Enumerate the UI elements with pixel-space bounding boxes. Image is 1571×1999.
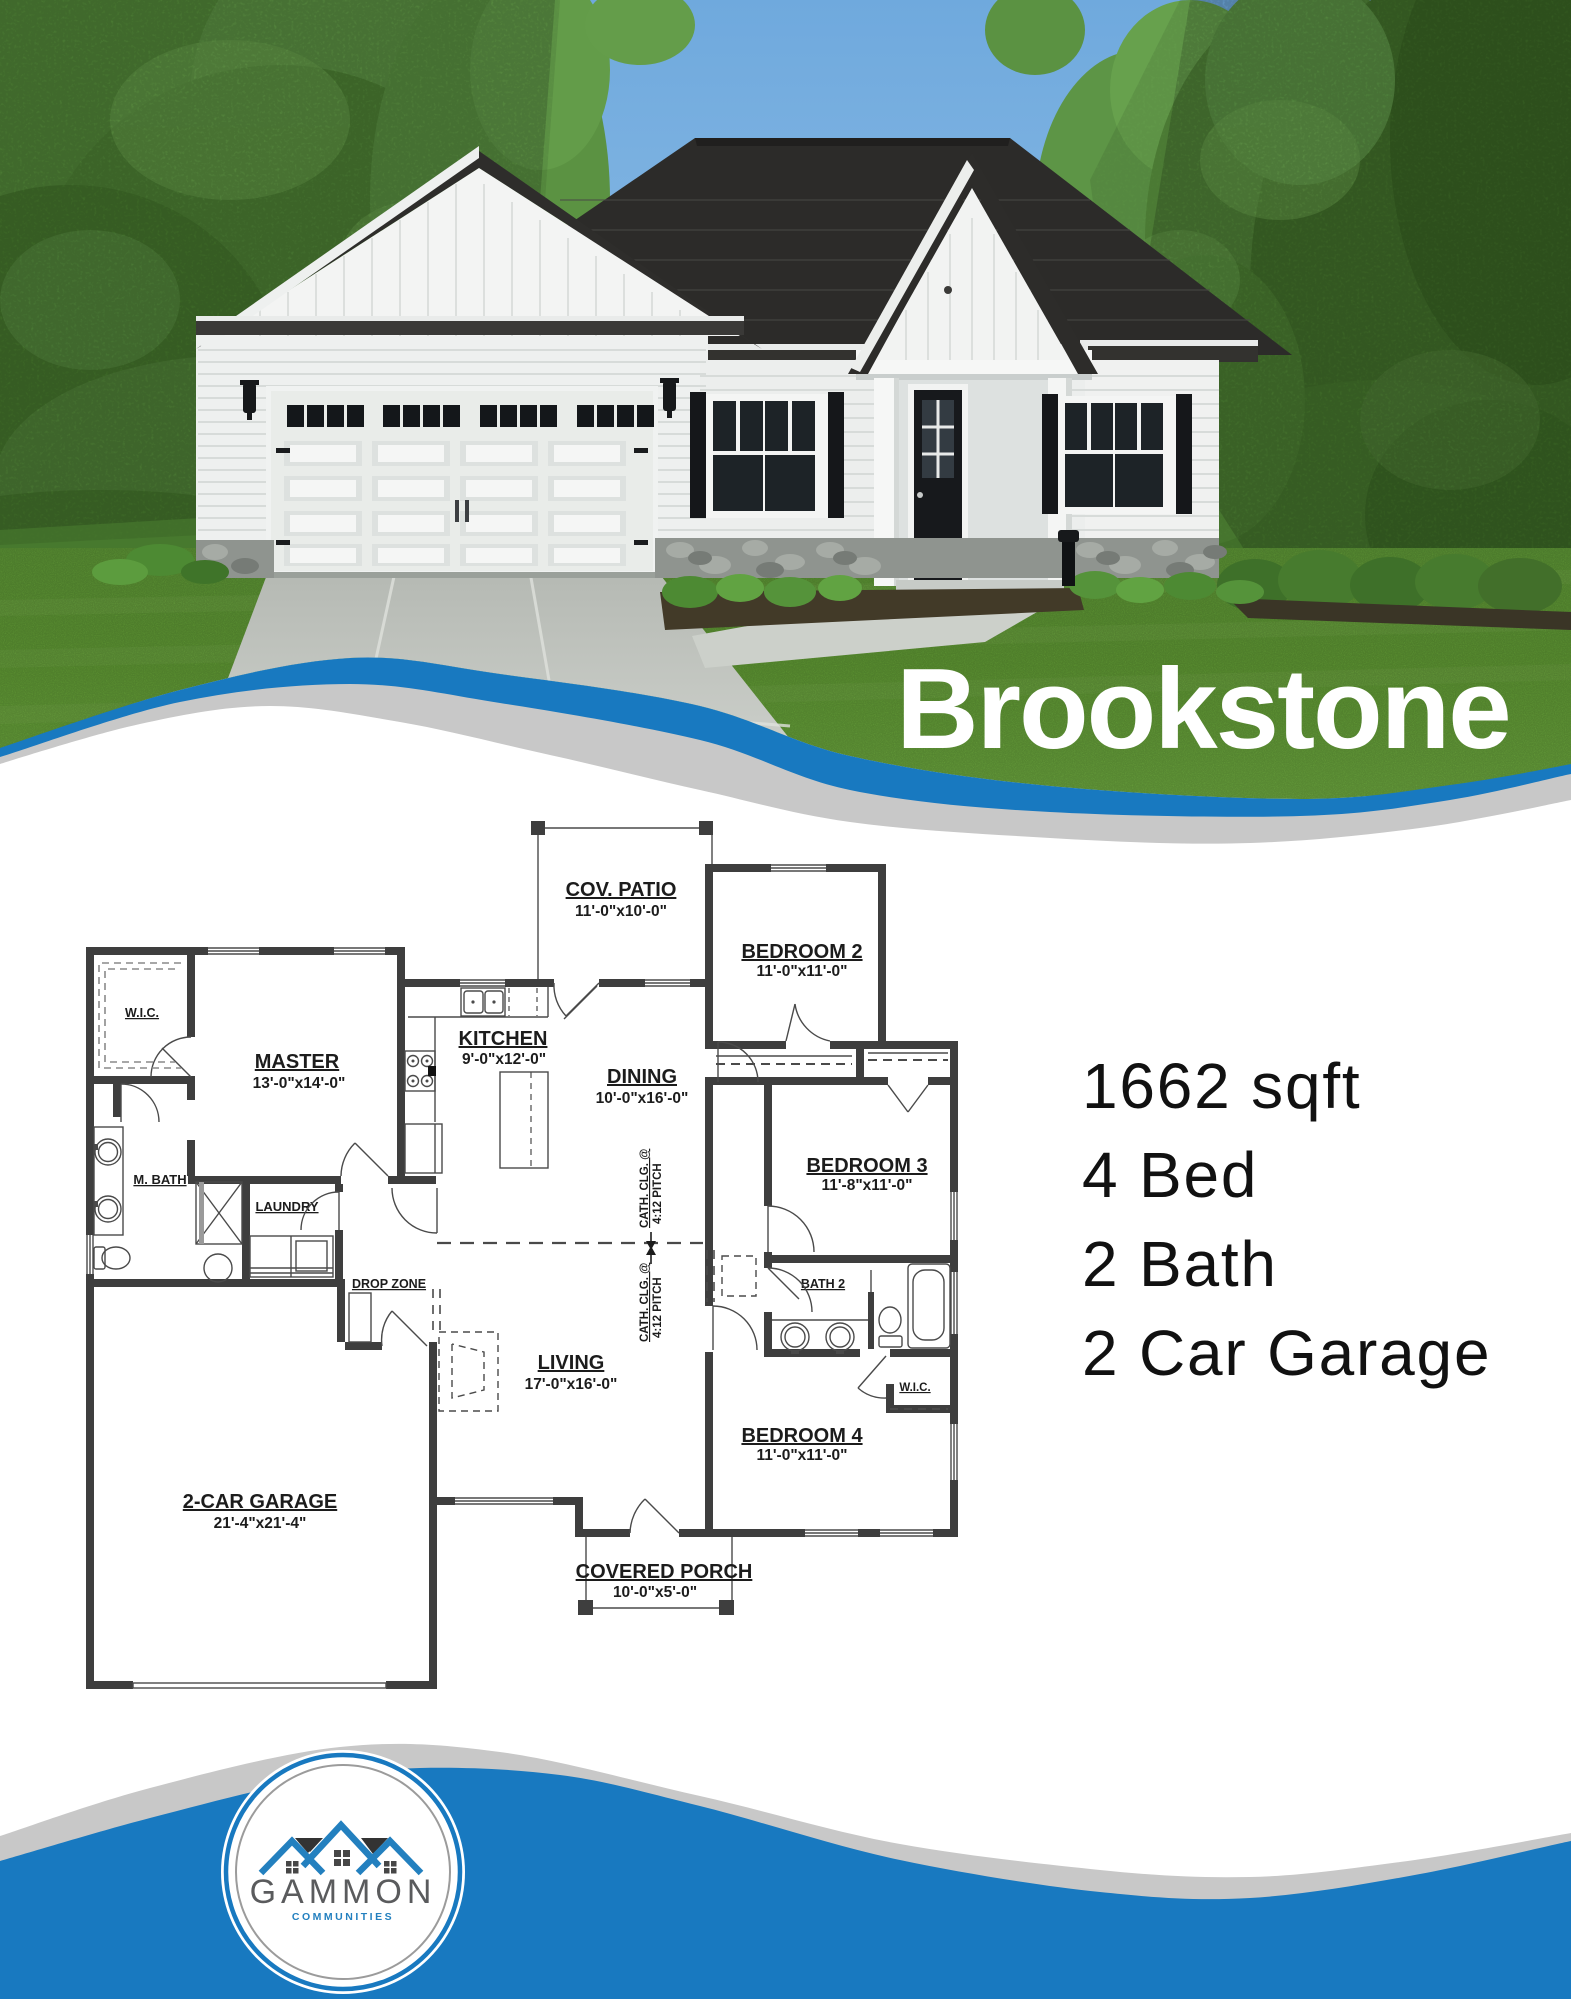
svg-text:17'-0"x16'-0": 17'-0"x16'-0" [525,1376,618,1393]
svg-text:COV. PATIO: COV. PATIO [566,879,677,901]
svg-text:GAMMON: GAMMON [250,1873,437,1911]
svg-text:9'-0"x12'-0": 9'-0"x12'-0" [462,1051,546,1068]
svg-text:11'-8"x11'-0": 11'-8"x11'-0" [821,1177,912,1194]
svg-text:2 Bath: 2 Bath [1082,1228,1278,1300]
svg-text:W.I.C.: W.I.C. [899,1382,930,1394]
svg-text:MASTER: MASTER [255,1051,340,1073]
svg-text:DROP ZONE: DROP ZONE [352,1277,426,1291]
svg-text:2 Car Garage: 2 Car Garage [1082,1317,1491,1389]
svg-text:W.I.C.: W.I.C. [125,1006,159,1020]
svg-text:21'-4"x21'-4": 21'-4"x21'-4" [214,1515,307,1532]
svg-text:BATH 2: BATH 2 [801,1277,845,1291]
svg-text:COMMUNITIES: COMMUNITIES [292,1911,394,1923]
svg-text:1662 sqft: 1662 sqft [1082,1050,1362,1122]
svg-text:BEDROOM 3: BEDROOM 3 [806,1155,927,1177]
svg-text:LIVING: LIVING [538,1352,605,1374]
svg-text:11'-0"x11'-0": 11'-0"x11'-0" [756,1447,847,1464]
svg-text:4:12 PITCH: 4:12 PITCH [652,1163,664,1224]
svg-text:11'-0"x11'-0": 11'-0"x11'-0" [756,963,847,980]
svg-text:13'-0"x14'-0": 13'-0"x14'-0" [253,1075,346,1092]
svg-text:10'-0"x16'-0": 10'-0"x16'-0" [596,1090,689,1107]
svg-text:BEDROOM 2: BEDROOM 2 [741,941,862,963]
svg-text:KITCHEN: KITCHEN [459,1028,548,1050]
svg-text:Brookstone: Brookstone [896,646,1509,773]
svg-text:4 Bed: 4 Bed [1082,1139,1258,1211]
svg-text:CATH. CLG. @: CATH. CLG. @ [639,1149,651,1228]
svg-text:11'-0"x10'-0": 11'-0"x10'-0" [575,903,667,920]
svg-text:M. BATH: M. BATH [133,1172,186,1187]
svg-text:10'-0"x5'-0": 10'-0"x5'-0" [613,1584,697,1601]
svg-text:COVERED PORCH: COVERED PORCH [576,1561,753,1583]
svg-text:DINING: DINING [607,1066,677,1088]
svg-text:4:12 PITCH: 4:12 PITCH [652,1277,664,1338]
svg-text:CATH. CLG. @: CATH. CLG. @ [639,1263,651,1342]
svg-text:BEDROOM 4: BEDROOM 4 [741,1425,863,1447]
svg-text:2-CAR GARAGE: 2-CAR GARAGE [183,1491,337,1513]
